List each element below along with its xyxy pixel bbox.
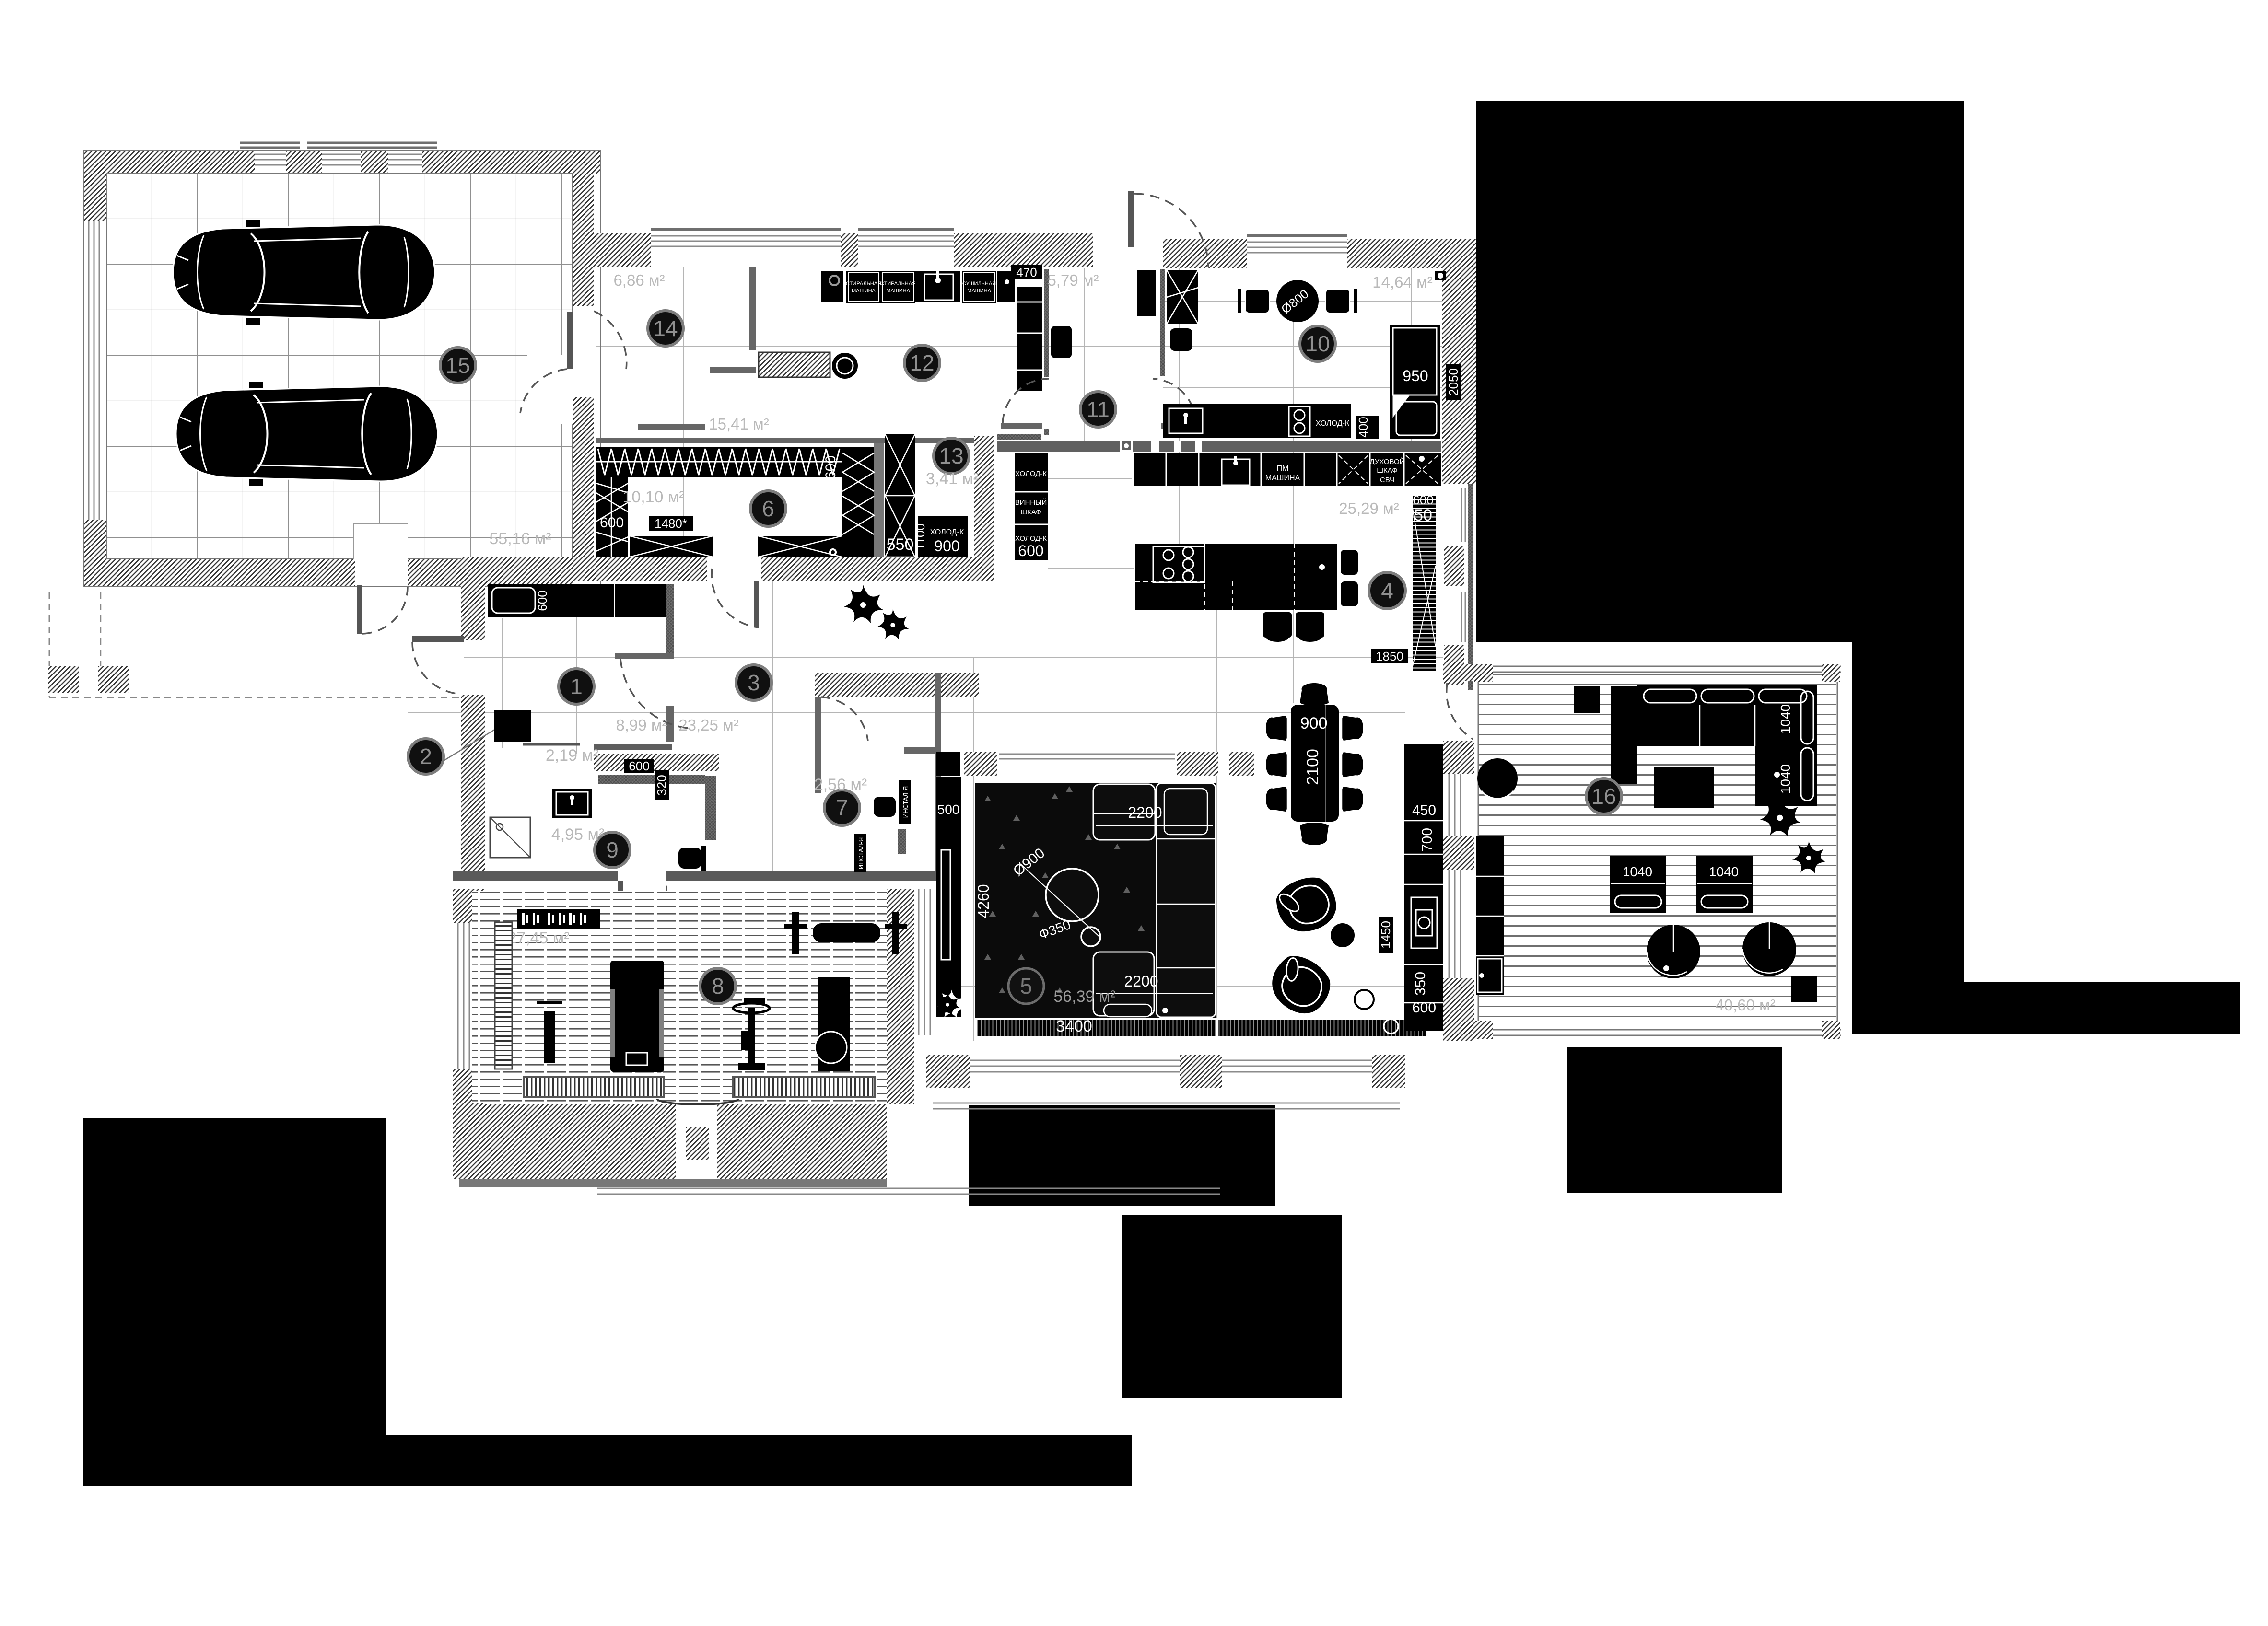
svg-text:600: 600 [1412, 1000, 1436, 1016]
svg-text:МАШИНА: МАШИНА [886, 288, 910, 294]
svg-text:7: 7 [836, 795, 848, 820]
svg-text:СТИРАЛЬНАЯ: СТИРАЛЬНАЯ [846, 281, 881, 287]
svg-text:МАШИНА: МАШИНА [852, 288, 876, 294]
svg-text:6: 6 [762, 496, 774, 521]
svg-text:5,79 м²: 5,79 м² [1047, 271, 1099, 289]
svg-text:10: 10 [1305, 331, 1330, 356]
svg-text:1: 1 [570, 674, 583, 699]
svg-text:350: 350 [1413, 972, 1428, 996]
svg-text:16: 16 [1591, 784, 1616, 809]
svg-text:600: 600 [823, 455, 839, 479]
svg-text:900: 900 [934, 537, 959, 555]
svg-text:СВЧ: СВЧ [1380, 476, 1394, 484]
svg-text:15,41 м²: 15,41 м² [709, 415, 769, 433]
svg-text:1040: 1040 [1623, 864, 1652, 879]
svg-text:4,95 м²: 4,95 м² [551, 825, 604, 844]
svg-text:15: 15 [445, 353, 470, 378]
svg-text:МАШИНА: МАШИНА [1265, 474, 1300, 482]
svg-text:470: 470 [1016, 265, 1037, 279]
svg-text:700: 700 [1419, 828, 1435, 852]
svg-text:25,29 м²: 25,29 м² [1339, 499, 1399, 517]
svg-text:600: 600 [600, 515, 624, 531]
svg-text:2200: 2200 [1128, 804, 1162, 821]
svg-text:ХОЛОД-К: ХОЛОД-К [1015, 470, 1047, 478]
svg-text:56,39 м²: 56,39 м² [1053, 987, 1115, 1006]
svg-text:ХОЛОД-К: ХОЛОД-К [1015, 534, 1047, 543]
svg-text:600: 600 [1413, 493, 1433, 507]
svg-text:3: 3 [748, 670, 760, 695]
svg-text:27,45 м²: 27,45 м² [507, 929, 569, 947]
svg-text:450: 450 [1412, 802, 1436, 818]
svg-text:9: 9 [606, 837, 619, 862]
svg-text:11: 11 [1087, 397, 1110, 422]
svg-text:СУШИЛЬНАЯ: СУШИЛЬНАЯ [962, 281, 996, 287]
svg-text:500: 500 [937, 802, 960, 817]
svg-text:ХОЛОД-К: ХОЛОД-К [930, 528, 964, 536]
svg-text:550: 550 [887, 535, 914, 554]
svg-text:3400: 3400 [1056, 1017, 1092, 1035]
svg-text:600: 600 [535, 590, 549, 611]
svg-text:55,16 м²: 55,16 м² [489, 530, 551, 548]
svg-text:8,99 м²: 8,99 м² [616, 716, 667, 734]
svg-text:2100: 2100 [1304, 749, 1322, 785]
svg-text:8: 8 [712, 974, 724, 999]
svg-text:900: 900 [1300, 714, 1328, 732]
svg-text:ПМ: ПМ [1277, 465, 1289, 473]
svg-text:40,60 м²: 40,60 м² [1715, 996, 1775, 1014]
svg-text:950: 950 [1403, 367, 1428, 384]
svg-text:600: 600 [1018, 542, 1043, 559]
svg-text:2050: 2050 [1446, 368, 1461, 396]
svg-text:13: 13 [939, 443, 963, 468]
svg-text:400: 400 [1356, 417, 1370, 437]
svg-text:12: 12 [910, 350, 934, 375]
svg-text:23,25 м²: 23,25 м² [678, 716, 738, 734]
svg-text:5: 5 [1020, 974, 1032, 999]
svg-text:6,86 м²: 6,86 м² [613, 271, 665, 289]
svg-text:ИНСТАЛ-Я: ИНСТАЛ-Я [857, 837, 865, 869]
svg-text:2,19 м²: 2,19 м² [546, 746, 598, 765]
svg-text:3,41 м²: 3,41 м² [926, 470, 979, 488]
svg-text:1040: 1040 [1778, 704, 1793, 734]
svg-text:ШКАФ: ШКАФ [1020, 508, 1041, 516]
svg-text:МАШИНА: МАШИНА [967, 288, 991, 294]
svg-text:2: 2 [420, 744, 432, 769]
svg-text:ВИННЫЙ: ВИННЫЙ [1015, 498, 1047, 507]
svg-text:2200: 2200 [1124, 973, 1158, 990]
svg-text:СТИРАЛЬНАЯ: СТИРАЛЬНАЯ [880, 281, 916, 287]
svg-text:1850: 1850 [1376, 649, 1403, 663]
svg-text:1480*: 1480* [655, 516, 687, 531]
svg-text:ДУХОВОЙ: ДУХОВОЙ [1370, 457, 1405, 466]
svg-text:10,10 м²: 10,10 м² [622, 488, 684, 506]
svg-text:320: 320 [655, 775, 669, 795]
svg-text:ХОЛОД-К: ХОЛОД-К [1316, 419, 1350, 428]
svg-text:600: 600 [629, 759, 649, 773]
svg-text:14: 14 [653, 316, 678, 341]
svg-text:2,56 м²: 2,56 м² [814, 776, 867, 794]
svg-text:1040: 1040 [1778, 764, 1793, 794]
svg-text:ИНСТАЛ-Я: ИНСТАЛ-Я [902, 786, 909, 818]
svg-text:ШКАФ: ШКАФ [1377, 466, 1397, 475]
svg-text:50: 50 [1414, 506, 1432, 524]
svg-text:4260: 4260 [975, 884, 992, 918]
svg-text:1040: 1040 [1709, 864, 1739, 879]
svg-text:1450: 1450 [1379, 921, 1393, 949]
svg-text:14,64 м²: 14,64 м² [1372, 273, 1432, 291]
svg-text:4: 4 [1381, 578, 1393, 603]
svg-text:1100: 1100 [913, 523, 927, 550]
